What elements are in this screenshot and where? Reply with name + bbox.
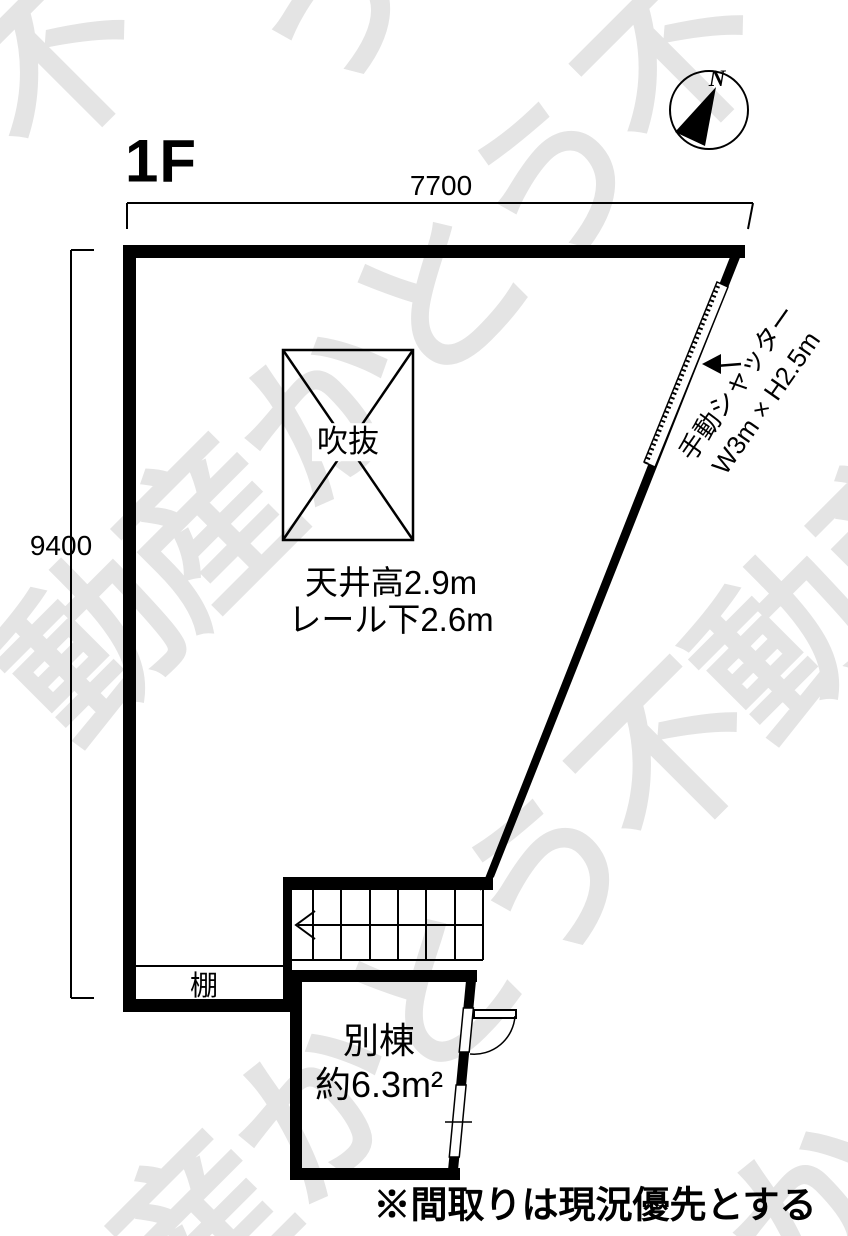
annex-area: 約6.3m²	[315, 1063, 443, 1107]
floor-label: 1F	[125, 127, 197, 196]
annex-name: 別棟	[315, 1019, 443, 1063]
dimension-top-value: 7700	[410, 170, 472, 202]
annex-label: 別棟 約6.3m²	[315, 1019, 443, 1107]
annex-door	[459, 1008, 516, 1054]
shelf-label: 棚	[190, 970, 218, 1002]
dimension-line-top	[127, 203, 753, 229]
stairs	[292, 890, 483, 960]
compass-north-label: N	[709, 66, 726, 92]
void-label: 吹抜	[312, 423, 384, 461]
dimension-line-left	[71, 250, 94, 998]
floor-plan: 不 う 動産かとう不 産かとう不動産 か	[0, 0, 848, 1236]
disclaimer-text: ※間取りは現況優先とする	[374, 1185, 817, 1228]
annex-window	[445, 1085, 472, 1157]
rail-clearance-line: レール下2.6m	[288, 601, 493, 638]
ceiling-height-note: 天井高2.9m レール下2.6m	[288, 564, 493, 638]
dimension-left-value: 9400	[30, 530, 92, 562]
ceiling-height-line: 天井高2.9m	[288, 564, 493, 601]
